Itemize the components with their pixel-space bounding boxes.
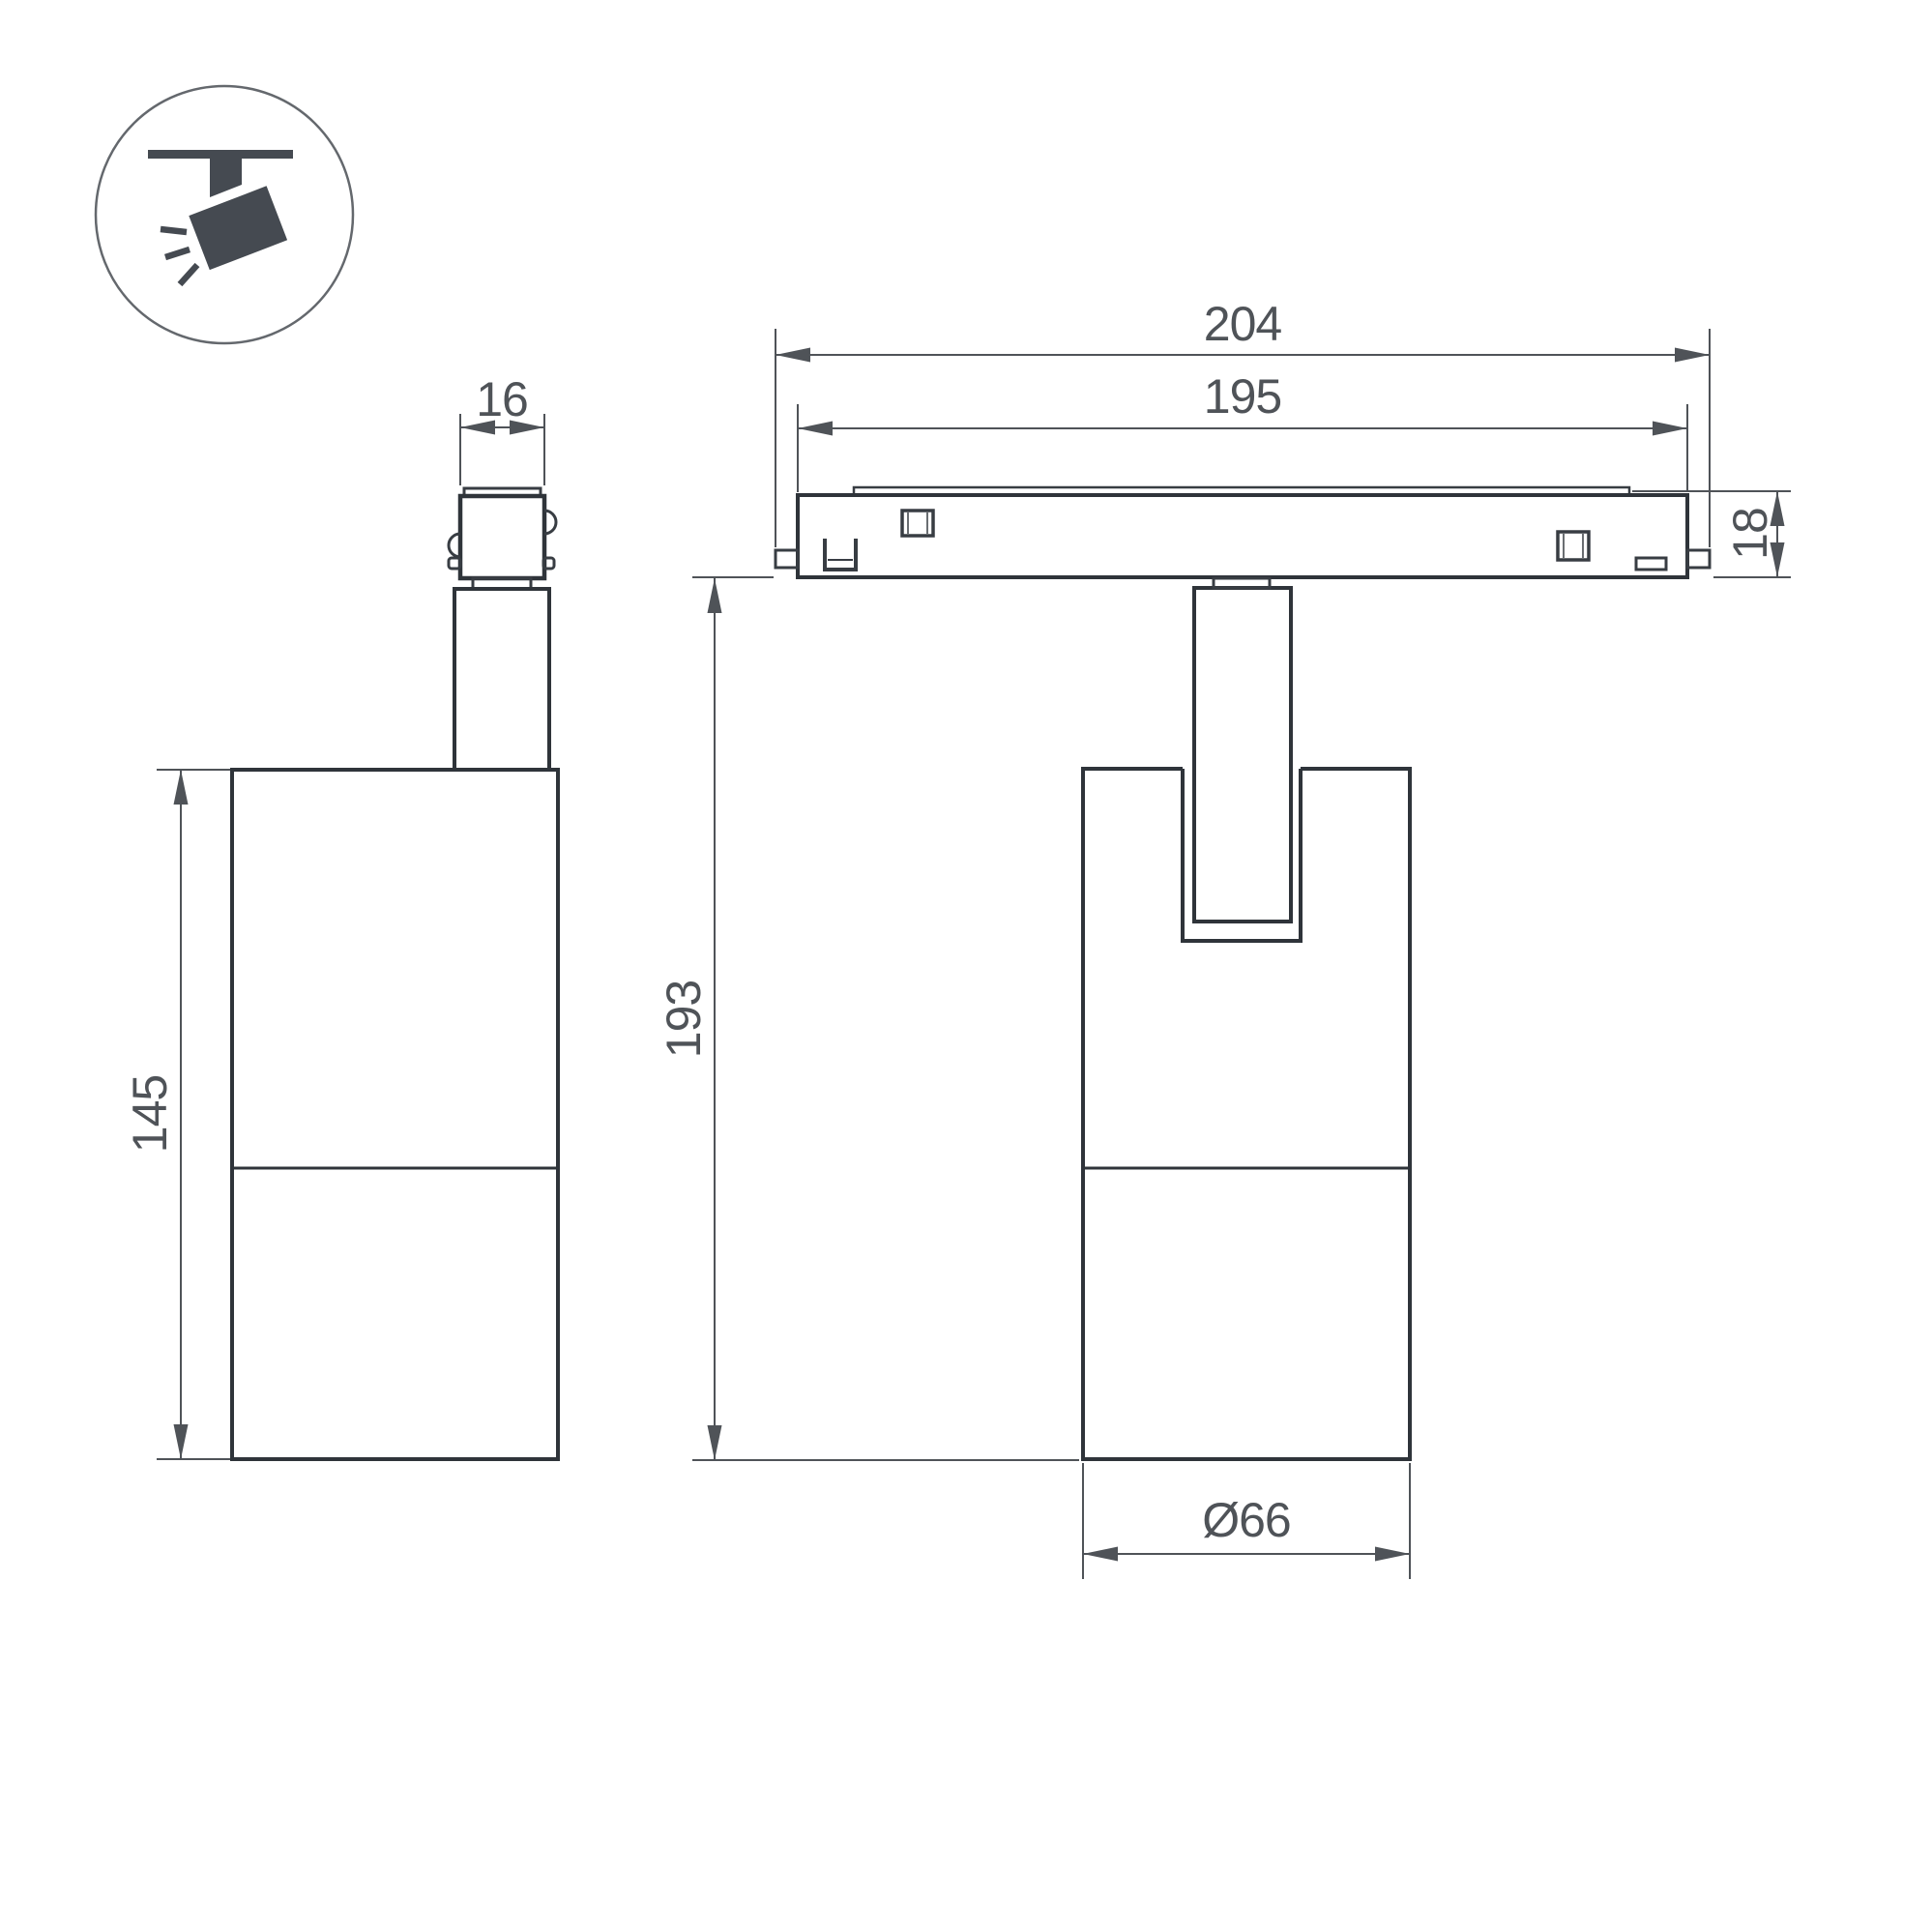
track-adapter [460,496,544,578]
dim-label-16: 16 [476,372,528,426]
arrowhead [798,422,833,436]
arrowhead [1375,1547,1410,1562]
icon-light-ray [161,229,187,232]
stem-neck [1214,578,1270,588]
dim-adapter-width: 16 [460,372,544,485]
arrowhead [1653,422,1687,436]
rail-end-tab [1687,550,1710,568]
arrowhead [1675,348,1710,363]
dim-label-diameter: Ø66 [1202,1493,1291,1547]
track-spotlight-icon [96,86,353,343]
drawing-svg: 16 145 204 [0,0,1932,1932]
arrowhead [776,348,810,363]
dim-label-195: 195 [1204,369,1281,424]
dim-body-diameter: Ø66 [1083,1463,1410,1579]
dim-body-height: 145 [123,770,230,1459]
arrowhead [1083,1547,1118,1562]
lamp-body [232,770,558,1459]
rail-end-tab [776,550,798,568]
dim-label-145: 145 [123,1075,177,1153]
arrowhead [708,578,722,613]
dim-label-18: 18 [1723,508,1777,560]
technical-drawing-page: 16 145 204 [0,0,1932,1932]
side-view [232,488,558,1459]
arrowhead [174,1424,189,1459]
icon-ceiling-bar [148,150,293,159]
dim-rail-length: 195 [798,369,1687,492]
dim-mount-height: 193 [657,577,1079,1460]
stem [1194,588,1291,922]
stem [454,589,549,770]
dim-label-204: 204 [1204,297,1282,351]
front-view [776,487,1710,1459]
arrowhead [174,770,189,805]
dim-label-193: 193 [657,981,711,1058]
arrowhead [708,1425,722,1460]
